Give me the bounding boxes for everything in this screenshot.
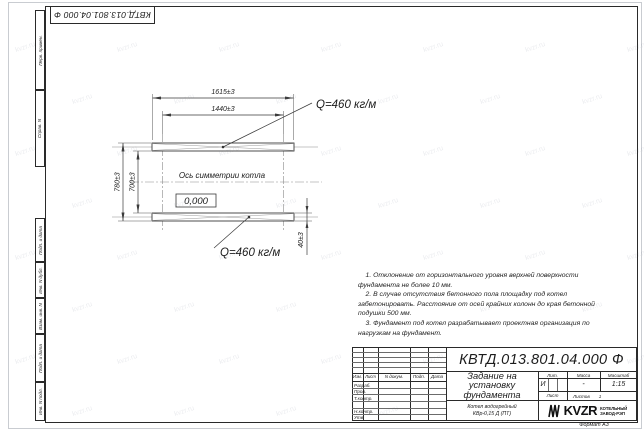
note-line: нагрузкам на фундамент. — [358, 329, 640, 339]
tb-line — [410, 347, 411, 421]
dim-length-outer: 1615±3 — [153, 89, 294, 140]
tb-listov-value: 1 — [599, 394, 602, 399]
tb-massa-label: Масса — [567, 373, 600, 378]
tb-massa-value: - — [567, 381, 600, 388]
load-label-top: Q=460 кг/м — [316, 99, 376, 111]
tb-logo-sub2: ЗАВОД-РЭП — [600, 411, 627, 416]
note-line: 2. В случае отсутствия бетонного пола пл… — [358, 290, 640, 300]
dim-text-1440: 1440±3 — [211, 106, 234, 113]
tb-lit-label: Лит. — [538, 373, 567, 378]
notes-block: 1. Отклонение от горизонтального уровня … — [358, 271, 640, 338]
tb-row-utv: Утв. — [354, 415, 364, 420]
elevation-mark: 0,000 — [176, 194, 216, 207]
tb-doc-number: КВТД.013.801.04.000 Ф — [447, 349, 636, 370]
tb-line — [557, 378, 558, 391]
tb-logo-subtext: КОТЕЛЬНЫЙ ЗАВОД-РЭП — [600, 406, 627, 416]
note-line: 3. Фундамент под котел разрабатывает про… — [358, 319, 640, 329]
tb-line — [352, 414, 446, 415]
dim-text-1615: 1615±3 — [211, 89, 234, 96]
tb-listov-label: Листов — [573, 394, 590, 399]
load-leader-top: Q=460 кг/м — [222, 99, 377, 148]
tb-title: Задание на установку фундамента — [447, 373, 537, 399]
tb-row-n-kontr: Н.контр. — [354, 409, 373, 414]
tb-line — [428, 347, 429, 421]
dim-beam-height: 40±3 — [295, 198, 312, 255]
tb-line — [378, 347, 379, 421]
load-label-bottom: Q=460 кг/м — [220, 247, 280, 259]
dim-length-inner: 1440±3 — [163, 106, 284, 134]
tb-listov-cell: Листов 1 — [568, 392, 642, 400]
drawing-sheet: Перв. примен. Справ. N Подп. и дата Инв.… — [0, 0, 644, 430]
dim-text-780: 780±3 — [115, 172, 122, 192]
elevation-text: 0,000 — [184, 196, 208, 207]
note-line: фундамента не более 10 мм. — [358, 281, 640, 291]
tb-line — [352, 367, 446, 368]
dim-text-40: 40±3 — [298, 232, 305, 248]
tb-lit-value: И — [538, 381, 548, 388]
tb-col-data: Дата — [428, 374, 446, 379]
tb-line — [352, 357, 446, 358]
tb-col-n-dokum: N докум. — [378, 374, 410, 379]
load-leader-bottom: Q=460 кг/м — [214, 216, 280, 259]
axis-label: Ось симметрии котла — [179, 171, 266, 180]
tb-col-list: Лист — [363, 374, 378, 379]
note-line: 1. Отклонение от горизонтального уровня … — [358, 271, 640, 281]
tb-line — [538, 378, 637, 379]
format-note: Формат А3 — [548, 422, 640, 428]
tb-row-razrab: Разраб. — [354, 383, 371, 388]
tb-line — [352, 401, 446, 402]
tb-logo-cell: KVZR КОТЕЛЬНЫЙ ЗАВОД-РЭП — [539, 401, 636, 420]
tb-product-line2: КВр-0,15 Д (ПТ) — [473, 411, 511, 417]
tb-line — [352, 362, 446, 363]
tb-list-label: Лист — [538, 393, 567, 398]
tb-product: Котел водогрейный КВр-0,15 Д (ПТ) — [447, 401, 537, 420]
note-line: подушки 500 мм. — [358, 309, 640, 319]
tb-col-podp: Подп. — [410, 374, 428, 379]
tb-line — [548, 378, 549, 391]
tb-row-prov: Пров. — [354, 389, 366, 394]
note-line: забетонировать. Расстояние от осей крайн… — [358, 300, 640, 310]
dim-text-700: 700±3 — [130, 172, 137, 192]
tb-masshtab-value: 1:15 — [600, 381, 637, 388]
tb-logo-text: KVZR — [564, 403, 597, 418]
tb-row-t-kontr: Т.контр. — [354, 396, 373, 401]
tb-line — [352, 352, 446, 353]
tb-masshtab-label: Масштаб — [600, 373, 637, 378]
foundation-beam-bottom — [152, 213, 294, 221]
tb-col-izm: Изм. — [352, 374, 363, 379]
kvzr-logo-icon — [548, 404, 561, 418]
